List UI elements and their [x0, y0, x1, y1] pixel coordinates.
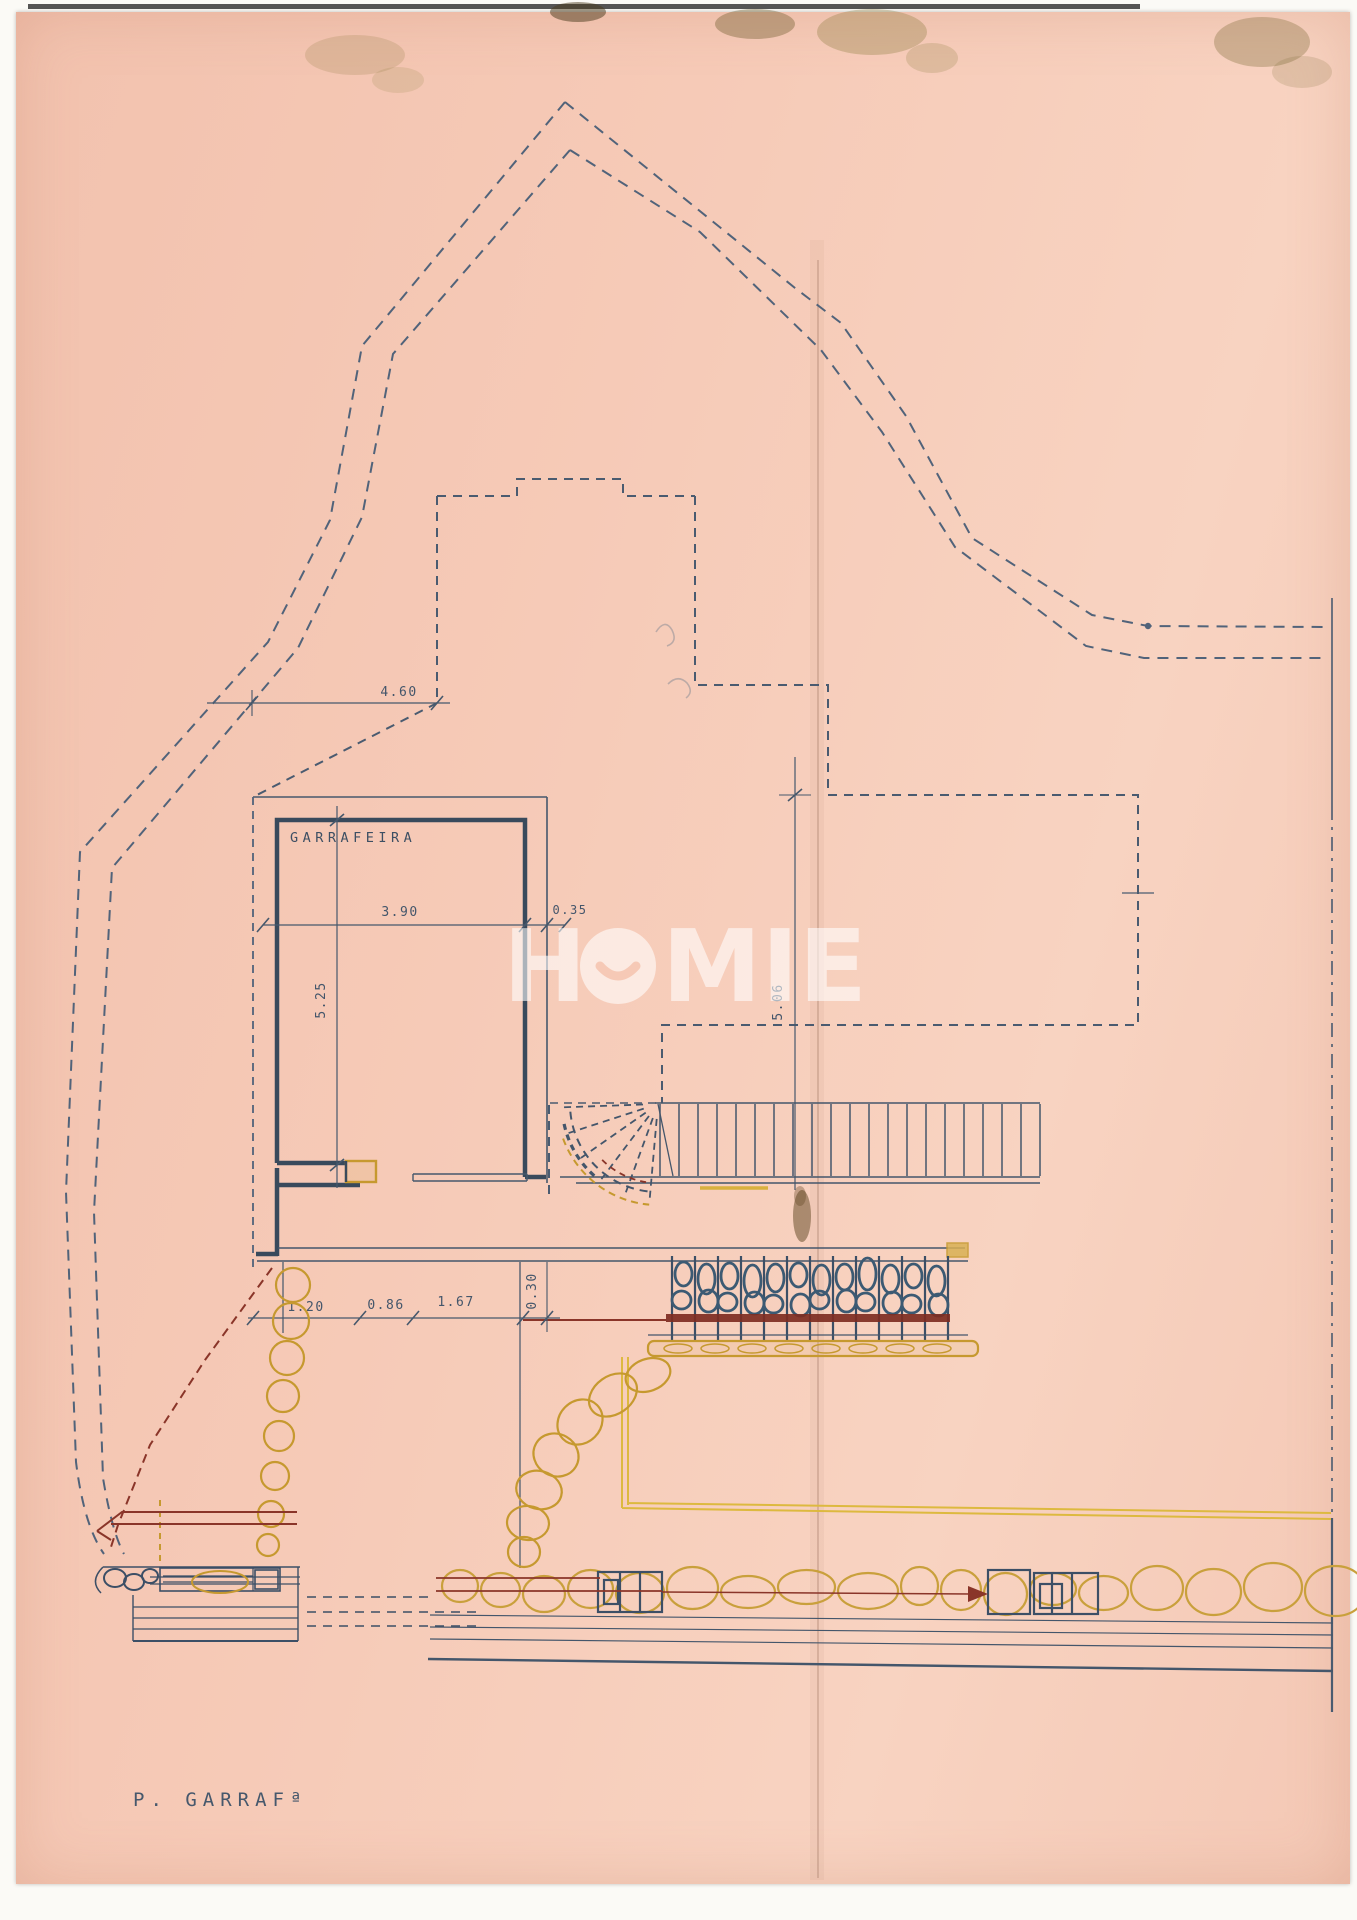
door-box: [346, 1161, 376, 1182]
bottom-stone-row: [442, 1563, 1357, 1616]
watermark-smiley-o-icon: [580, 928, 656, 1004]
dimension-label-top-width: 4.60: [380, 685, 417, 700]
dimension-label-room-width: 3.90: [381, 905, 418, 920]
winder-stair-fan: [561, 1105, 657, 1205]
dimension-label-seg2: 0.86: [367, 1298, 404, 1313]
dimension-terrace-segments: 1.20 0.86 1.67 0.30: [247, 1262, 560, 1332]
garrafeira-room: GARRAFEIRA: [253, 797, 547, 1270]
ochre-beam: [648, 1341, 978, 1356]
stone-arc: [506, 1352, 675, 1567]
drawing-title-label: P. GARRAFª: [133, 1789, 307, 1811]
pencil-scribbles: [656, 624, 690, 698]
dimension-room-depth: 5.25: [314, 806, 344, 1188]
watermark-letters-mie: MIE: [662, 908, 867, 1025]
stair-treads: [660, 1104, 1040, 1176]
left-retaining-column: [97, 1262, 310, 1563]
red-band: [666, 1314, 950, 1322]
dimension-label-step-depth: 0.30: [525, 1272, 540, 1309]
bottom-terrace-band: [428, 1262, 1357, 1671]
bottom-left-platform: [95, 1567, 478, 1641]
yellow-path-lines: [622, 1357, 1331, 1519]
dimension-label-room-depth: 5.25: [314, 981, 329, 1018]
navy-structure-right: [988, 1570, 1098, 1614]
right-boundary-line: [1122, 598, 1332, 1712]
terrace-stone-wall: [257, 1243, 978, 1356]
room-walls: [256, 820, 546, 1256]
base-lines: [428, 1615, 1333, 1671]
dimension-label-seg3: 1.67: [437, 1295, 474, 1310]
scanned-floor-plan-page: GARRAFEIRA 4.60 3.90 0.35 5.25 5.06: [0, 0, 1357, 1920]
floor-plan-drawing: GARRAFEIRA 4.60 3.90 0.35 5.25 5.06: [0, 0, 1357, 1920]
room-name-label: GARRAFEIRA: [290, 830, 416, 846]
shelf-lines: [413, 1174, 527, 1181]
watermark-letter-h: H: [503, 908, 587, 1025]
homie-watermark: H MIE: [503, 908, 867, 1025]
red-dashed-slope: [111, 1268, 272, 1547]
